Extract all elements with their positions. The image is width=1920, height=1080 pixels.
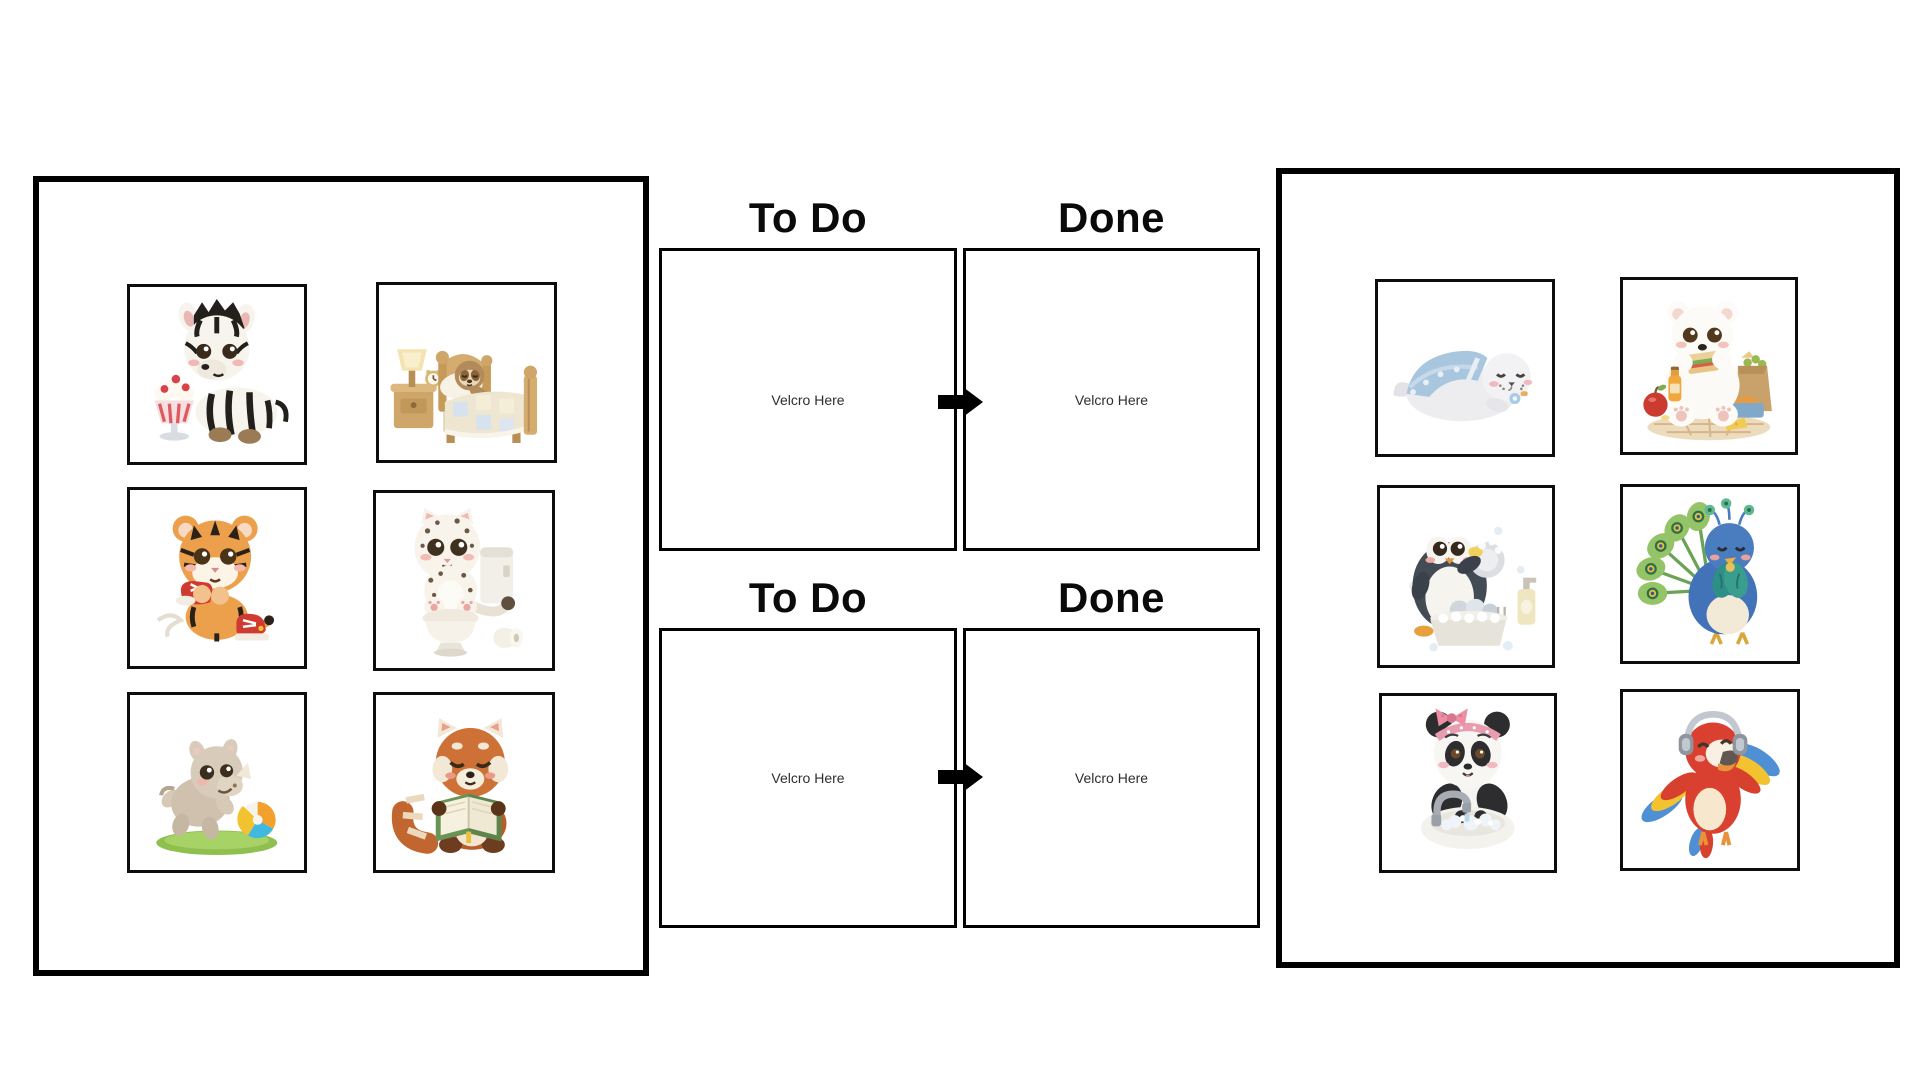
task-card-tiger-shoes[interactable] xyxy=(127,487,307,669)
seal-sleeping-under-blanket-illustration xyxy=(1383,287,1547,449)
right-arrow-icon xyxy=(938,761,984,793)
parrot-listening-music-illustration xyxy=(1628,697,1792,862)
task-card-red-panda-reading[interactable] xyxy=(373,692,555,873)
velcro-here-label: Velcro Here xyxy=(771,392,844,408)
done-velcro-box-2[interactable]: Velcro Here xyxy=(963,628,1260,928)
task-card-polar-bear-lunch[interactable] xyxy=(1620,277,1798,455)
right-task-card-board xyxy=(1276,168,1900,968)
todo-title-2: To Do xyxy=(659,572,957,624)
velcro-here-label: Velcro Here xyxy=(771,770,844,786)
tiger-tying-shoes-illustration xyxy=(135,495,299,660)
panda-washing-hands-illustration xyxy=(1387,701,1549,865)
done-velcro-box-1[interactable]: Velcro Here xyxy=(963,248,1260,551)
task-card-rhino-playtime[interactable] xyxy=(127,692,307,873)
peacock-resting-quietly-illustration xyxy=(1628,492,1792,656)
rhino-playing-with-ball-illustration xyxy=(135,700,299,865)
task-chart-page: To Do Done Velcro Here Velcro Here To Do… xyxy=(0,0,1920,1080)
right-arrow-icon xyxy=(938,386,984,418)
velcro-here-label: Velcro Here xyxy=(1075,770,1148,786)
penguin-washing-dishes-illustration xyxy=(1385,493,1547,659)
task-card-peacock-quiet-time[interactable] xyxy=(1620,484,1800,664)
velcro-here-label: Velcro Here xyxy=(1075,392,1148,408)
red-panda-reading-book-illustration xyxy=(381,700,546,865)
polar-bear-eating-lunch-illustration xyxy=(1628,285,1790,447)
snow-leopard-on-toilet-illustration xyxy=(381,498,546,663)
done-title-1: Done xyxy=(963,192,1260,244)
task-card-panda-wash-hands[interactable] xyxy=(1379,693,1557,873)
task-card-penguin-dishes[interactable] xyxy=(1377,485,1555,668)
done-title-2: Done xyxy=(963,572,1260,624)
todo-title-1: To Do xyxy=(659,192,957,244)
task-card-leopard-potty[interactable] xyxy=(373,490,555,671)
task-card-zebra-ice-cream[interactable] xyxy=(127,284,307,465)
task-card-parrot-music[interactable] xyxy=(1620,689,1800,871)
todo-velcro-box-2[interactable]: Velcro Here xyxy=(659,628,957,928)
zebra-eating-ice-cream-illustration xyxy=(135,292,299,457)
todo-velcro-box-1[interactable]: Velcro Here xyxy=(659,248,957,551)
task-card-seal-naptime[interactable] xyxy=(1375,279,1555,457)
sloth-sleeping-in-bed-illustration xyxy=(384,290,549,455)
task-card-sloth-bedtime[interactable] xyxy=(376,282,557,463)
